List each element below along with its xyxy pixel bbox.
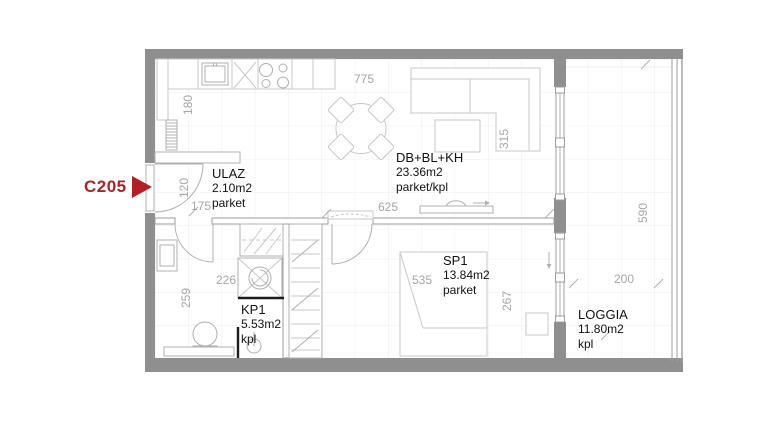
room-name: SP1 (443, 253, 490, 268)
dim-120: 120 (177, 178, 191, 198)
room-floor: parket (212, 196, 252, 211)
dim-226: 226 (216, 273, 236, 287)
dim-315: 315 (497, 129, 511, 149)
dim-625: 625 (378, 200, 398, 214)
bathroom-window (164, 347, 234, 356)
room-area: 11.80m2 (578, 322, 628, 337)
coffee-table (435, 120, 480, 152)
room-floor: kpl (578, 337, 628, 352)
dim-180: 180 (181, 95, 195, 115)
kitchen-sink (202, 63, 228, 85)
dim-200: 200 (614, 272, 634, 286)
room-floor: kpl (241, 332, 281, 347)
unit-code: C205 (84, 177, 127, 197)
room-name: KP1 (241, 302, 281, 317)
room-floor: parket/kpl (396, 180, 463, 195)
wardrobe (289, 224, 322, 358)
floor-plan: C205 ULAZ 2.10m2 parket DB+BL+KH 23.36m2… (0, 0, 780, 424)
room-area: 2.10m2 (212, 181, 252, 196)
dim-590: 590 (636, 203, 650, 223)
shower (238, 258, 282, 298)
room-area: 5.53m2 (241, 317, 281, 332)
bathroom-sink (157, 240, 177, 271)
nightstand (526, 313, 548, 335)
room-label-loggia: LOGGIA 11.80m2 kpl (578, 307, 628, 351)
room-floor: parket (443, 283, 490, 298)
room-name: LOGGIA (578, 307, 628, 322)
room-label-living: DB+BL+KH 23.36m2 parket/kpl (396, 150, 463, 194)
unit-arrow-icon (132, 176, 152, 198)
glass-door-living (556, 87, 565, 200)
room-label-ulaz: ULAZ 2.10m2 parket (212, 166, 252, 210)
room-area: 13.84m2 (443, 268, 490, 283)
room-area: 23.36m2 (396, 165, 463, 180)
dim-775: 775 (354, 72, 374, 86)
kitchen-island (155, 152, 240, 163)
glass-door-bedroom (556, 233, 565, 322)
room-name: ULAZ (212, 166, 252, 181)
room-name: DB+BL+KH (396, 150, 463, 165)
kitchen-tall-unit (157, 59, 168, 120)
kitchen-counter (168, 59, 335, 89)
dim-535: 535 (412, 273, 432, 287)
dim-175: 175 (191, 199, 211, 213)
dim-267: 267 (500, 291, 514, 311)
loggia-railing (672, 59, 682, 362)
shaft (240, 224, 283, 256)
room-label-bath: KP1 5.53m2 kpl (241, 302, 281, 346)
dim-259: 259 (179, 288, 193, 308)
unit-marker: C205 (84, 174, 152, 200)
radiator (166, 120, 177, 150)
room-label-bedroom: SP1 13.84m2 parket (443, 253, 490, 297)
